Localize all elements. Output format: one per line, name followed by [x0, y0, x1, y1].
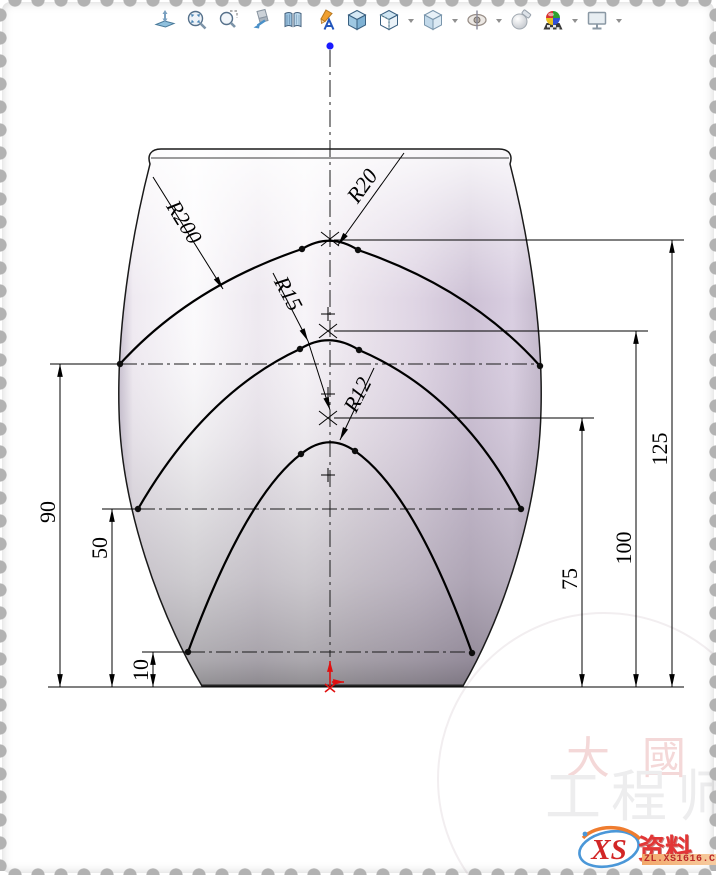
- view-settings-dropdown-caret[interactable]: [616, 19, 622, 23]
- centerline-endpoint[interactable]: [326, 42, 333, 49]
- apply-scene-dropdown-caret[interactable]: [572, 19, 578, 23]
- dimension-100[interactable]: 100: [611, 532, 636, 565]
- dimension-125[interactable]: 125: [647, 433, 672, 466]
- site-logo-mark: XS: [576, 820, 646, 872]
- dimension-50[interactable]: 50: [87, 537, 112, 559]
- heads-up-view-toolbar: [152, 5, 622, 35]
- hide-show-types-icon[interactable]: [420, 7, 446, 33]
- dimension-90[interactable]: 90: [35, 501, 60, 523]
- hide-show-types-dropdown-caret[interactable]: [452, 19, 458, 23]
- edit-appearance-icon[interactable]: [508, 7, 534, 33]
- display-style-icon[interactable]: [376, 7, 402, 33]
- site-url: ZL.XS1616.COM: [642, 854, 716, 865]
- zoom-to-area-icon[interactable]: [216, 7, 242, 33]
- site-logo: XS 资料网 ZL.XS1616.COM: [576, 820, 716, 872]
- apply-scene-icon[interactable]: [540, 7, 566, 33]
- cad-viewport[interactable]: R200 R20 R15 R12 90 50 10 75 100 125: [0, 0, 716, 875]
- hide-show-items-eye-icon[interactable]: [464, 7, 490, 33]
- view-orientation-icon[interactable]: [344, 7, 370, 33]
- zoom-to-fit-icon[interactable]: [184, 7, 210, 33]
- display-style-dropdown-caret[interactable]: [408, 19, 414, 23]
- normal-to-icon[interactable]: [152, 7, 178, 33]
- dimension-10[interactable]: 10: [128, 659, 153, 681]
- dimension-75[interactable]: 75: [557, 568, 582, 590]
- hide-show-items-dropdown-caret[interactable]: [496, 19, 502, 23]
- site-logo-monogram: XS: [590, 834, 626, 866]
- site-name: 资料网: [638, 827, 716, 875]
- previous-view-icon[interactable]: [248, 7, 274, 33]
- annotation-views-icon[interactable]: [312, 7, 338, 33]
- view-settings-icon[interactable]: [584, 7, 610, 33]
- section-view-icon[interactable]: [280, 7, 306, 33]
- application-canvas: R200 R20 R15 R12 90 50 10 75 100 125 大 國…: [0, 0, 716, 875]
